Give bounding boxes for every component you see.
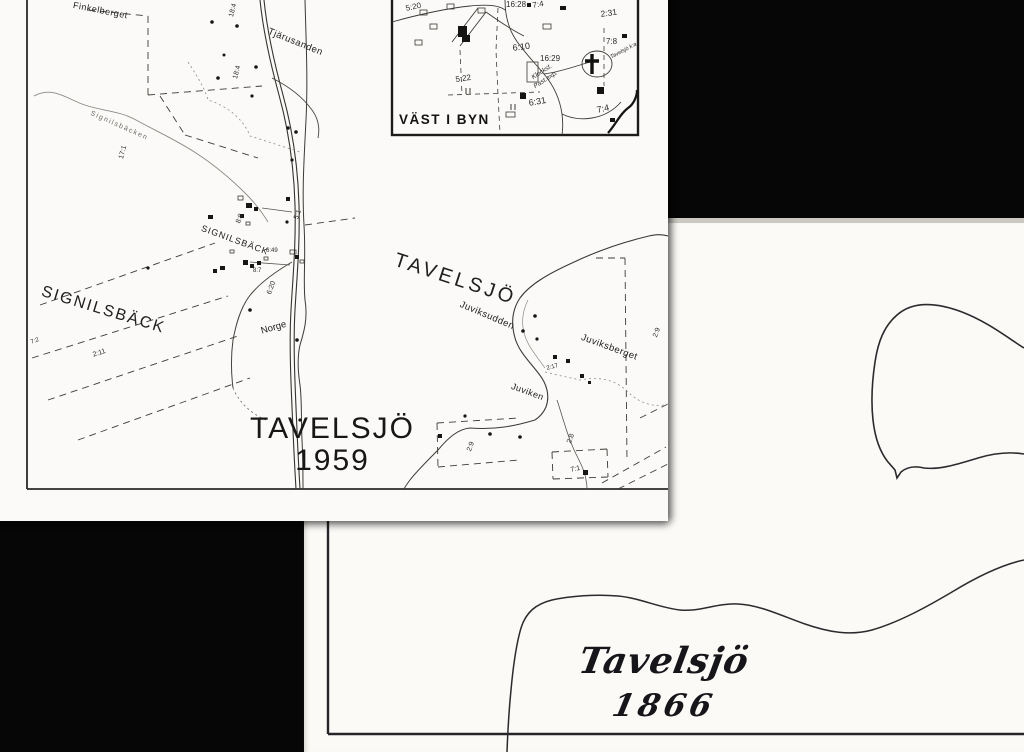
inset-parcel-number: 16:28 [506,1,526,9]
map-1866-title-name: Tavelsjö [570,640,757,682]
parcel-number: 6:49 [266,248,278,254]
inset-parcel-number: 16:29 [540,55,560,63]
lake-outline-north-1866 [872,305,1024,479]
scanner-background-top-right [666,0,1024,223]
map-1866-title: Tavelsjö 1866 [574,640,754,724]
road-branch-beach [272,78,319,138]
map-1959-title: TAVELSJÖ 1959 [225,413,440,478]
map-1959-title-year: 1959 [225,445,440,477]
inset-marsh-marks [466,88,515,110]
parcel-number: 8:7 [253,268,261,274]
map-1959-paper: Finkelberget Tjärusanden Signilsbäcken S… [0,0,668,521]
church-cross-icon [585,54,599,74]
inset-caption: VÄST I BYN [399,112,490,127]
scanned-maps-page: Tavelsjö 1866 [0,0,1024,752]
map-1866-title-year: 1866 [570,688,758,724]
inset-parcel-number: 2:31 [600,8,618,19]
village-lanes [250,208,292,265]
inset-parcel-number: 7:8 [606,38,617,46]
inset-stream [608,90,637,133]
stream-signilsbacken [34,92,268,222]
shoreline-northeast-exit [645,235,668,237]
map-1959-title-name: TAVELSJÖ [225,413,440,445]
scanner-background-bottom-left [0,522,303,752]
